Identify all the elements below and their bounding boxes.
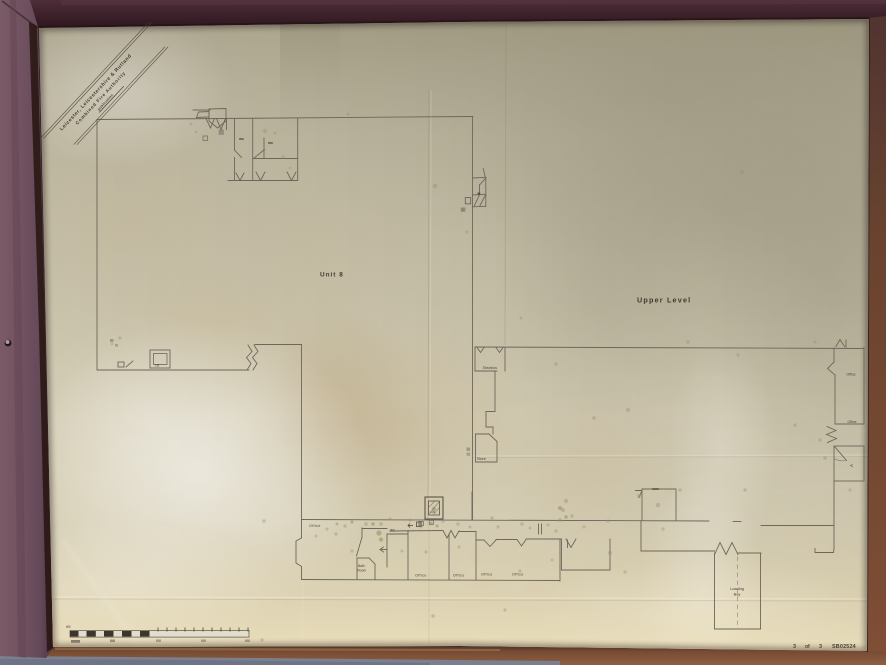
svg-text:Office: Office xyxy=(848,420,857,424)
svg-text:Electrics: Electrics xyxy=(483,366,497,370)
svg-text:Upper Level: Upper Level xyxy=(637,296,691,305)
svg-text:Office: Office xyxy=(512,573,524,577)
svg-text:Lift: Lift xyxy=(155,364,159,368)
svg-text:Room: Room xyxy=(358,569,367,573)
svg-text:Office: Office xyxy=(415,574,427,578)
svg-text:Store: Store xyxy=(477,457,486,461)
svg-text:3: 3 xyxy=(793,644,796,650)
svg-text:Office: Office xyxy=(481,573,493,577)
svg-text:wc: wc xyxy=(267,140,274,145)
svg-text:Office: Office xyxy=(453,574,465,578)
svg-text:Loading: Loading xyxy=(730,586,744,591)
svg-text:3: 3 xyxy=(819,644,822,650)
svg-text:SB02524: SB02524 xyxy=(832,644,856,650)
svg-text:Unit 8: Unit 8 xyxy=(320,272,344,279)
svg-text:Bay: Bay xyxy=(734,592,741,597)
svg-text:Bath: Bath xyxy=(358,564,365,568)
svg-text:Office: Office xyxy=(847,373,856,377)
svg-text:Office: Office xyxy=(309,524,321,528)
svg-text:WC: WC xyxy=(390,529,396,533)
svg-text:wc: wc xyxy=(238,136,245,141)
svg-text:of: of xyxy=(805,644,810,650)
